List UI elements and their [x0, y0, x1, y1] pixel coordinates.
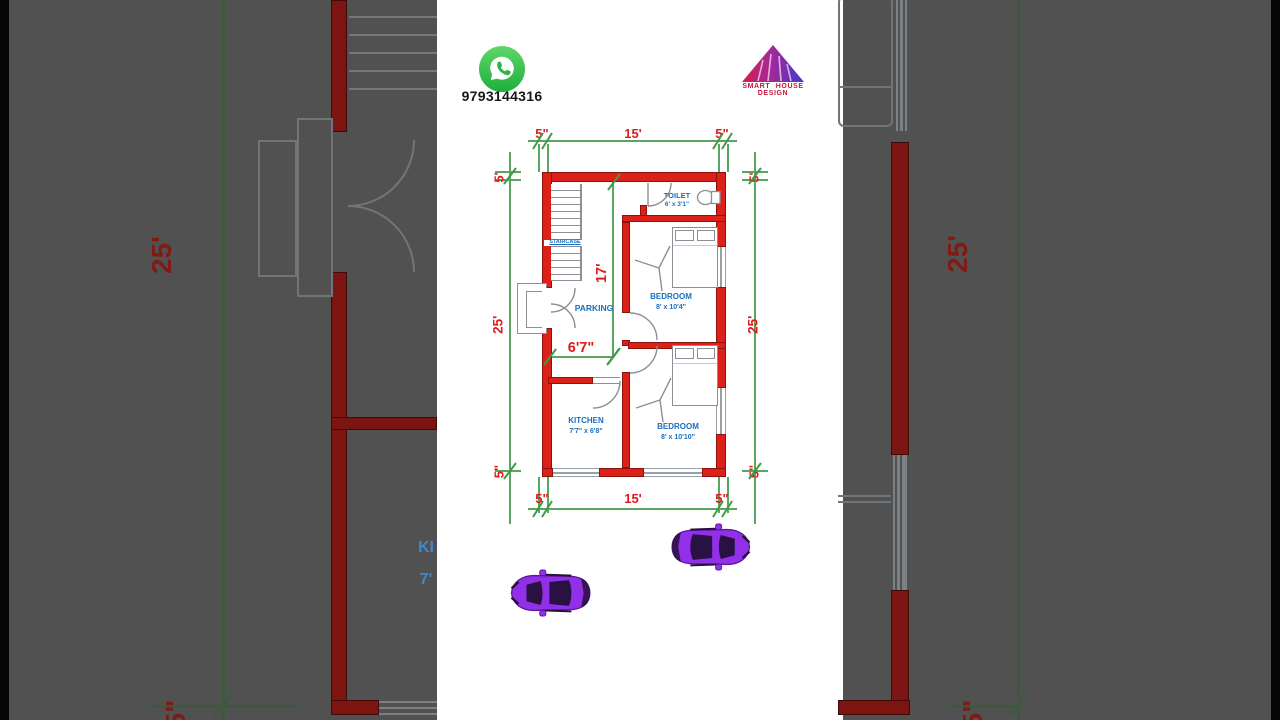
- dim-label-parking-depth: 17': [595, 257, 610, 289]
- dim-line-bottom: [528, 508, 737, 510]
- kitchen-top-wall: [548, 377, 593, 384]
- phone-number: 9793144316: [458, 88, 546, 104]
- dim-label: 5": [748, 458, 761, 486]
- bg-kitchen-size-fragment: 7': [413, 572, 439, 588]
- brand-name: SMART HOUSE DESIGN: [725, 83, 821, 97]
- bg-wall: [331, 0, 347, 132]
- bg-window: [893, 455, 907, 590]
- toilet-label: TOILET: [658, 192, 696, 200]
- kitchen-size: 7'7" x 6'8": [556, 428, 616, 435]
- dim-label: 5': [493, 164, 506, 192]
- kitchen-divider-wall: [622, 372, 630, 468]
- bedroom1-wall: [622, 222, 630, 313]
- dim-label: 15': [619, 127, 647, 140]
- dim-label: 25': [746, 308, 760, 342]
- bg-dim-label: 5": [162, 696, 202, 720]
- entrance-opening: [542, 288, 552, 328]
- bg-window: [896, 0, 907, 131]
- bedroom1-label: BEDROOM: [644, 293, 698, 301]
- bg-bed-line: [838, 495, 891, 503]
- dim-label: 15': [619, 492, 647, 505]
- main-content-panel: [437, 0, 843, 720]
- bg-bed-outline: [838, 0, 893, 127]
- dim-line-left: [509, 152, 511, 524]
- outer-wall-bottom: [542, 468, 553, 477]
- staircase-steps: [551, 184, 582, 281]
- dim-label: 25': [491, 308, 505, 342]
- bed-blanket-line: [673, 245, 717, 246]
- pillow: [675, 230, 694, 241]
- bg-bed-line: [838, 86, 893, 88]
- bg-entrance-door-panel: [297, 118, 333, 297]
- bedroom2-bottom-window: [644, 468, 702, 477]
- toilet-size: 6' x 3'1": [655, 202, 699, 209]
- pillow: [675, 348, 694, 359]
- pillow: [697, 230, 715, 241]
- dim-ext: [727, 144, 729, 172]
- dim-label: 5": [711, 492, 733, 505]
- bg-wall: [331, 417, 437, 430]
- pillow: [697, 348, 715, 359]
- dim-line-parking-width: [548, 356, 614, 358]
- kitchen-window: [553, 468, 599, 477]
- dim-label: 5': [748, 164, 761, 192]
- dim-label: 5": [711, 127, 733, 140]
- bg-dim-label: 25': [944, 235, 1004, 273]
- dim-label: 5": [531, 127, 553, 140]
- bg-kitchen-label-fragment: KI: [412, 540, 440, 556]
- kitchen-label: KITCHEN: [560, 417, 612, 425]
- bg-staircase-lines: [349, 0, 437, 100]
- bg-dim-label: 25': [148, 238, 208, 274]
- dim-line-parking-depth: [612, 182, 614, 358]
- dim-ext: [718, 144, 720, 172]
- bg-entrance-door-panel: [258, 140, 297, 277]
- dim-label: 5": [493, 458, 506, 486]
- whatsapp-icon: [479, 46, 525, 92]
- dim-label: 5": [531, 492, 553, 505]
- bg-wall: [838, 700, 910, 715]
- bg-dim-label: 5": [959, 695, 999, 720]
- bg-dimension-line: [1017, 0, 1020, 720]
- outer-wall-bottom: [599, 468, 644, 477]
- dim-label-parking-width: 6'7": [557, 341, 605, 356]
- outer-wall-left: [542, 328, 552, 477]
- right-black-edge: [1271, 0, 1280, 720]
- house-roof-logo: [741, 44, 805, 84]
- whatsapp-glyph: [485, 52, 519, 86]
- left-black-edge: [0, 0, 9, 720]
- bg-wall: [891, 142, 909, 455]
- bg-wall: [331, 700, 379, 715]
- dim-ext: [538, 144, 540, 172]
- kitchen-door-leaf: [593, 377, 620, 384]
- bg-wall: [891, 590, 909, 703]
- bedroom2-size: 8' x 10'10": [647, 434, 709, 441]
- staircase-label: STAIRCASE: [544, 240, 586, 246]
- bedroom2-label: BEDROOM: [650, 423, 706, 431]
- outer-wall-bottom: [702, 468, 726, 477]
- video-frame: 25' 5" KI 7' 25' 5" 9793144316 SMART HOU…: [0, 0, 1280, 720]
- toilet-bottom-wall: [622, 215, 726, 222]
- parking-label: PARKING: [572, 304, 616, 313]
- outer-wall-top: [542, 172, 726, 182]
- bg-window: [379, 701, 437, 715]
- bg-wall: [331, 272, 347, 704]
- bed-blanket-line: [673, 363, 717, 364]
- bg-dimension-line: [222, 0, 225, 720]
- bedroom1-size: 8' x 10'4": [644, 304, 698, 311]
- dim-ext: [547, 144, 549, 172]
